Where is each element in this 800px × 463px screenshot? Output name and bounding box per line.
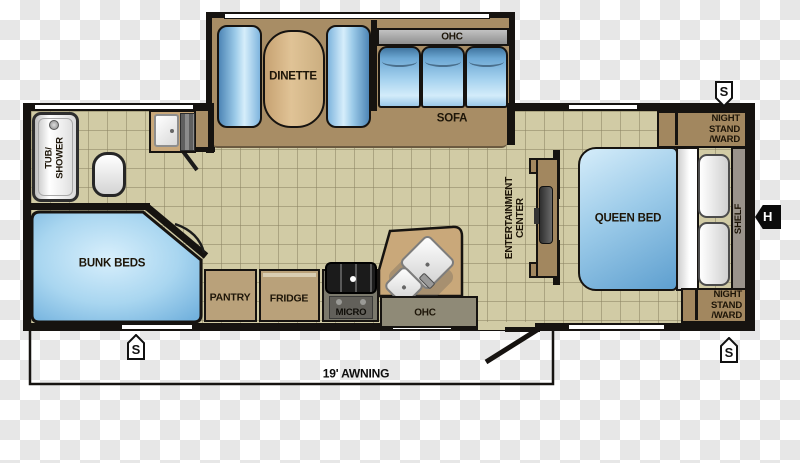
bathroom-door (182, 150, 197, 170)
fridge-label: FRIDGE (270, 294, 308, 305)
dinette-bench-left (217, 25, 262, 128)
bunk-beds-label: BUNK BEDS (79, 259, 146, 270)
sofa-cushion (378, 46, 421, 108)
sink-drain (425, 262, 431, 268)
dinette-label: DINETTE (269, 72, 317, 83)
sofa-seam (469, 56, 504, 67)
bath-sink-drain (170, 129, 174, 133)
bathroom-bottom-wall (23, 203, 150, 210)
tub-shower-label: TUB/ SHOWER (45, 137, 66, 179)
toilet (92, 152, 126, 197)
sofa-cushion (465, 46, 508, 108)
sofa-cushion (421, 46, 465, 108)
sofa (377, 46, 509, 108)
stabilizer-badge-left: S (127, 334, 145, 360)
sofa-label: SOFA (437, 114, 468, 125)
burner-knob (336, 299, 342, 305)
sofa-seam (425, 56, 461, 67)
floorplan-canvas: TUB/ SHOWER BUNK BEDS DINETTE OHC SOFA P… (0, 0, 800, 463)
hookup-badge-label: H (763, 209, 772, 224)
pillow (698, 222, 730, 286)
pantry-label: PANTRY (210, 293, 251, 304)
fridge-top-trim (263, 273, 316, 277)
tub-drain (49, 120, 59, 130)
entertainment-label: ENTERTAINMENT CENTER (504, 177, 526, 259)
pillow (698, 154, 730, 218)
entry-door-swing (486, 330, 537, 362)
cooktop (325, 262, 377, 294)
queen-bed-label: QUEEN BED (595, 214, 662, 225)
bed-sheet (676, 147, 699, 291)
sink-drain (401, 285, 407, 291)
bath-sink (154, 114, 179, 147)
stabilizer-badge-top: S (715, 81, 733, 107)
tv (539, 186, 553, 244)
bath-cabinet (180, 113, 195, 151)
burner-knob (360, 299, 366, 305)
sofa-seam (382, 56, 417, 67)
awning-label: 19' AWNING (323, 369, 389, 380)
dinette-bench-right (326, 25, 371, 128)
awning-outline (30, 331, 553, 384)
shelf-label: SHELF (734, 204, 745, 234)
micro-label: MICRO (336, 308, 367, 319)
kitchen-ohc-label: OHC (414, 308, 436, 319)
sofa-ohc-label: OHC (441, 32, 463, 43)
nightstand-bottom-label: NIGHT STAND /WARD (682, 290, 742, 322)
nightstand-top-label: NIGHT STAND /WARD (658, 114, 740, 146)
stabilizer-badge-right: S (720, 337, 738, 363)
cooktop-knob (350, 276, 356, 282)
